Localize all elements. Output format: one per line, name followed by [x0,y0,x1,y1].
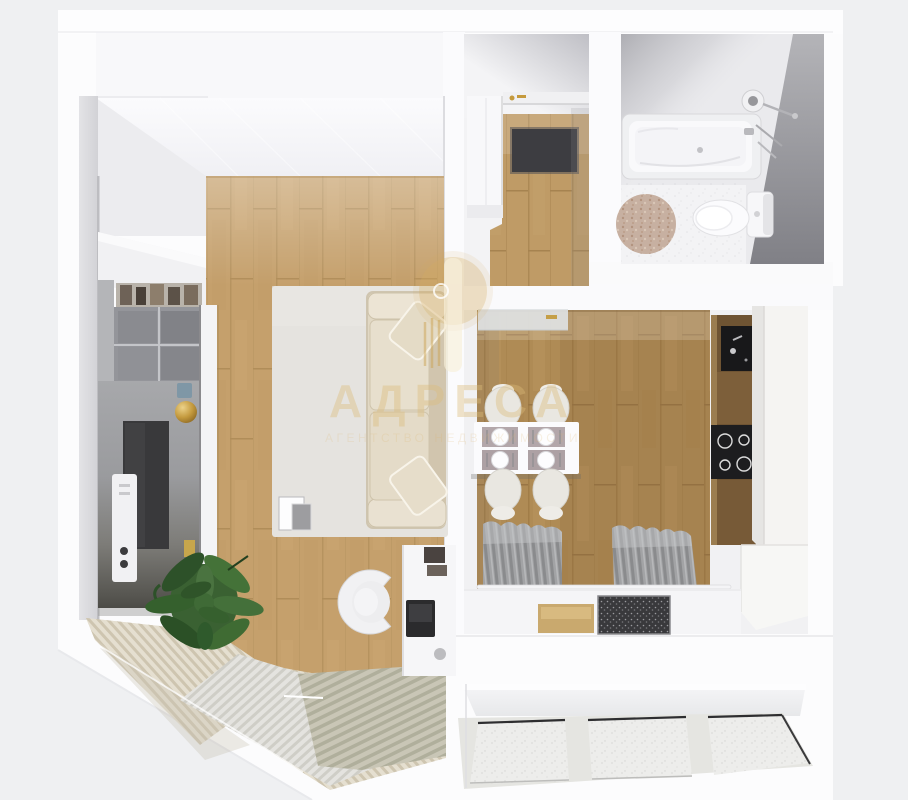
svg-text:АГЕНТСТВО НЕДВИЖИМОСТИ: АГЕНТСТВО НЕДВИЖИМОСТИ [325,431,581,445]
svg-text:АДРЕСА: АДРЕСА [329,375,577,427]
